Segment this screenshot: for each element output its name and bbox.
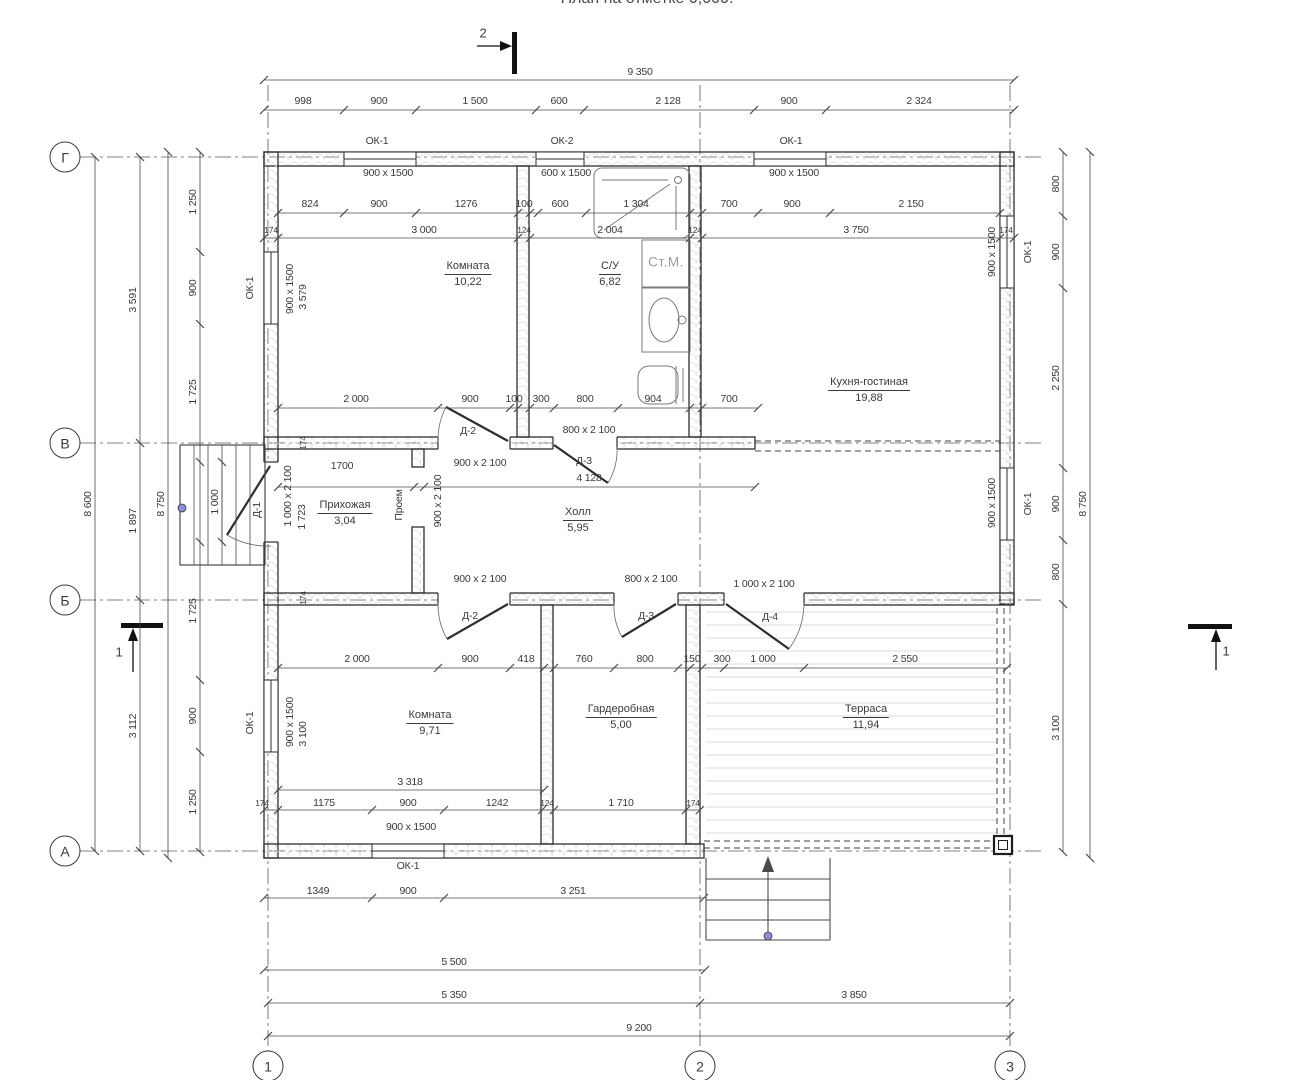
marker-label: 2 xyxy=(479,27,486,40)
size-label: 900 x 2 100 xyxy=(454,458,507,469)
dim-label: 2 128 xyxy=(655,96,680,107)
window-tags-label: ОК-1 xyxy=(397,861,420,872)
dim-label: 760 xyxy=(576,654,593,665)
axis-bubble-2: 2 xyxy=(685,1051,716,1080)
door-label: Проем xyxy=(394,489,405,520)
door-label: Д-2 xyxy=(462,611,478,622)
axis-bubble-3: 3 xyxy=(995,1051,1026,1080)
dim-label: 124 xyxy=(540,799,554,808)
dim-label: 3 112 xyxy=(128,714,139,739)
room-label: Гардеробная5,00 xyxy=(586,699,657,731)
room-area: 10,22 xyxy=(444,275,491,289)
dim-label: 1700 xyxy=(331,461,354,472)
dim-label: 8 600 xyxy=(83,491,94,516)
room-label: Холл5,95 xyxy=(563,502,593,534)
dim-label: 900 xyxy=(400,798,417,809)
dim-label: 900 xyxy=(1051,496,1062,513)
room-name: Кухня-гостиная xyxy=(828,376,910,391)
dim-label: 600 xyxy=(551,96,568,107)
dim-label: 1 000 xyxy=(750,654,775,665)
dim-label: 3 100 xyxy=(1051,715,1062,740)
dim-label: 1 710 xyxy=(608,798,633,809)
dim-label: 124 xyxy=(688,226,702,235)
room-label: Терраса11,94 xyxy=(843,699,889,731)
dim-label: 8 750 xyxy=(156,491,167,516)
room-area: 9,71 xyxy=(406,724,453,738)
size-label: 900 x 1500 xyxy=(386,822,436,833)
dim-label: 174 xyxy=(299,436,308,450)
dim-label: 800 xyxy=(1051,564,1062,581)
dim-label: 2 000 xyxy=(343,394,368,405)
dim-label: 2 250 xyxy=(1051,365,1062,390)
room-name: Гардеробная xyxy=(586,703,657,718)
dim-label: 900 xyxy=(188,280,199,297)
axis-bubble-А: А xyxy=(50,836,81,867)
dim-label: 1 000 xyxy=(210,489,221,514)
size-label: 900 x 1500 xyxy=(363,168,413,179)
dim-label: 1276 xyxy=(455,199,478,210)
dim-label: 1 304 xyxy=(623,199,648,210)
dim-label: 800 xyxy=(1051,176,1062,193)
dim-label: 1 500 xyxy=(462,96,487,107)
room-name: С/У xyxy=(599,260,621,275)
dim-label: 9 350 xyxy=(627,67,652,78)
dim-label: 1 723 xyxy=(297,504,308,529)
dim-label: 3 100 xyxy=(298,721,309,746)
dim-label: 300 xyxy=(533,394,550,405)
window-tags-label: ОК-1 xyxy=(366,136,389,147)
size-label: 900 x 1500 xyxy=(987,227,998,277)
size-label: 800 x 2 100 xyxy=(563,425,616,436)
room-label: Прихожая3,04 xyxy=(318,495,373,527)
dim-label: 3 579 xyxy=(298,284,309,309)
dim-label: 2 000 xyxy=(344,654,369,665)
dim-label: 1 897 xyxy=(128,508,139,533)
dim-label: 150 xyxy=(684,654,701,665)
room-name: Холл xyxy=(563,506,593,521)
room-label: Комната9,71 xyxy=(406,705,453,737)
dim-label: 900 xyxy=(781,96,798,107)
room-area: 11,94 xyxy=(843,718,889,732)
window-tags-label: ОК-1 xyxy=(245,277,256,300)
dim-label: 3 251 xyxy=(560,886,585,897)
room-name: Комната xyxy=(444,260,491,275)
dim-label: 8 750 xyxy=(1078,491,1089,516)
dim-label: 3 850 xyxy=(841,990,866,1001)
marker-label: 1 xyxy=(1222,645,1229,658)
window-tags-label: ОК-1 xyxy=(245,712,256,735)
room-area: 3,04 xyxy=(318,514,373,528)
dim-label: 900 xyxy=(371,96,388,107)
door-label: Д-3 xyxy=(576,456,592,467)
dim-label: 2 150 xyxy=(898,199,923,210)
room-name: Прихожая xyxy=(318,499,373,514)
size-label: 900 x 1500 xyxy=(987,478,998,528)
room-area: 19,88 xyxy=(828,391,910,405)
dim-label: 5 350 xyxy=(441,990,466,1001)
axis-bubble-Б: Б xyxy=(50,585,81,616)
dim-label: 700 xyxy=(721,199,738,210)
door-label: Д-4 xyxy=(762,612,778,623)
dim-label: 700 xyxy=(721,394,738,405)
dim-label: 174 xyxy=(264,226,278,235)
size-label: 900 x 2 100 xyxy=(433,475,444,528)
marker-label: 1 xyxy=(115,646,122,659)
size-label: 1 000 x 2 100 xyxy=(283,465,294,526)
dim-label: 900 xyxy=(400,886,417,897)
window-tags-label: ОК-1 xyxy=(1023,493,1034,516)
dim-label: 2 324 xyxy=(906,96,931,107)
room-name: Терраса xyxy=(843,703,889,718)
dim-label: 1242 xyxy=(486,798,509,809)
dim-label: 1 250 xyxy=(188,789,199,814)
dim-label: 1 725 xyxy=(188,379,199,404)
dim-label: 174 xyxy=(299,591,308,605)
dim-label: 1175 xyxy=(313,798,335,809)
size-label: 800 x 2 100 xyxy=(625,574,678,585)
dim-label: 2 550 xyxy=(892,654,917,665)
dim-label: 418 xyxy=(518,654,535,665)
dim-label: 800 xyxy=(577,394,594,405)
fixture-label: Ст.М. xyxy=(648,255,684,269)
dim-label: 800 xyxy=(637,654,654,665)
floor-plan-page: План на отметке 0,000. 9 3509989001 5006… xyxy=(0,0,1308,1080)
size-label: 900 x 1500 xyxy=(285,697,296,747)
dim-label: 300 xyxy=(714,654,731,665)
dim-label: 100 xyxy=(506,394,523,405)
dim-label: 124 xyxy=(517,226,531,235)
size-label: 900 x 2 100 xyxy=(454,574,507,585)
size-label: 600 x 1500 xyxy=(541,168,591,179)
dim-label: 3 591 xyxy=(128,287,139,312)
size-label: 1 000 x 2 100 xyxy=(733,579,794,590)
size-label: 900 x 1500 xyxy=(769,168,819,179)
window-tags-label: ОК-1 xyxy=(780,136,803,147)
dim-label: 998 xyxy=(295,96,312,107)
dim-label: 904 xyxy=(645,394,662,405)
dim-label: 824 xyxy=(302,199,319,210)
axis-bubble-1: 1 xyxy=(253,1051,284,1080)
dim-label: 900 xyxy=(371,199,388,210)
dim-label: 1 725 xyxy=(188,598,199,623)
dim-label: 174 xyxy=(686,799,700,808)
dim-label: 900 xyxy=(784,199,801,210)
axis-bubble-Г: Г xyxy=(50,142,81,173)
room-area: 5,00 xyxy=(586,718,657,732)
door-label: Д-2 xyxy=(460,426,476,437)
dim-label: 2 004 xyxy=(597,225,622,236)
room-label: Комната10,22 xyxy=(444,256,491,288)
dim-label: 900 xyxy=(1051,244,1062,261)
room-area: 5,95 xyxy=(563,521,593,535)
window-tags-label: ОК-1 xyxy=(1023,241,1034,264)
dim-label: 5 500 xyxy=(441,957,466,968)
dim-label: 9 200 xyxy=(626,1023,651,1034)
dim-label: 3 750 xyxy=(843,225,868,236)
dim-label: 4 128 xyxy=(576,473,601,484)
room-label: Кухня-гостиная19,88 xyxy=(828,372,910,404)
door-label: Д-3 xyxy=(638,611,654,622)
dim-label: 1349 xyxy=(307,886,330,897)
dim-label: 174 xyxy=(255,799,269,808)
dim-label: 3 000 xyxy=(411,225,436,236)
window-tags-label: ОК-2 xyxy=(551,136,574,147)
room-area: 6,82 xyxy=(599,275,621,289)
room-label: С/У6,82 xyxy=(599,256,621,288)
dim-label: 100 xyxy=(516,199,533,210)
door-label: Д-1 xyxy=(252,502,263,518)
dim-label: 900 xyxy=(188,708,199,725)
dim-label: 900 xyxy=(462,394,479,405)
axis-bubble-В: В xyxy=(50,428,81,459)
labels-layer: 9 3509989001 5006002 1289002 32482490012… xyxy=(0,0,1308,1080)
room-name: Комната xyxy=(406,709,453,724)
dim-label: 174 xyxy=(999,226,1013,235)
dim-label: 900 xyxy=(462,654,479,665)
dim-label: 3 318 xyxy=(397,777,422,788)
size-label: 900 x 1500 xyxy=(285,264,296,314)
dim-label: 600 xyxy=(552,199,569,210)
dim-label: 1 250 xyxy=(188,189,199,214)
